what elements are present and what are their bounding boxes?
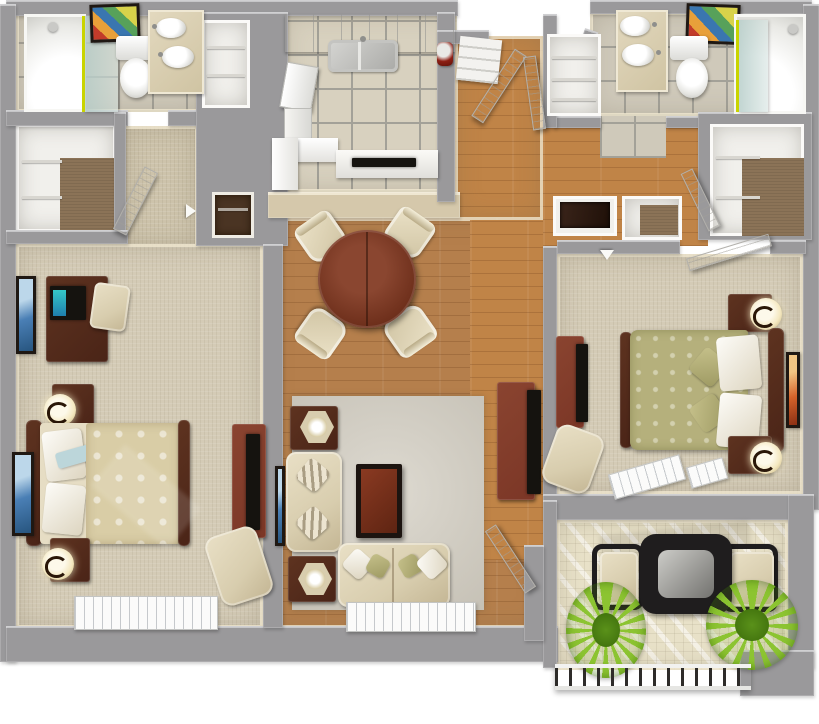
- closet-2-shelf: [716, 196, 760, 199]
- tv-b2: [576, 344, 588, 422]
- coffee-table: [356, 464, 402, 538]
- utility-closet-shelf: [207, 46, 245, 49]
- kitchen-sink-divider: [358, 42, 361, 70]
- vanity-2-sink-top: [620, 16, 650, 36]
- lamp-b1-bottom: [42, 548, 74, 580]
- vanity-2-sink-bottom: [622, 44, 654, 66]
- desk-monitor-screen: [53, 290, 66, 316]
- door-swing-mark: [600, 250, 614, 260]
- wall-bath1-bottom-left: [6, 110, 128, 126]
- sofa-cushion-split: [392, 548, 394, 602]
- vanity-1-faucet-icon: [152, 24, 157, 29]
- patio-table-glass: [658, 550, 714, 598]
- laundry-shelf: [552, 56, 596, 59]
- bathroom-2-entry-tile: [600, 116, 666, 158]
- wall-patio-left: [543, 500, 557, 668]
- patio-railing: [555, 664, 751, 690]
- bedroom-1-art-bottom: [12, 452, 34, 536]
- bed-2-pillow: [716, 334, 763, 391]
- laundry-closet: [547, 34, 601, 116]
- closet-1-shelf: [22, 160, 62, 163]
- bedroom-1-window: [74, 596, 218, 630]
- vanity-1-faucet-icon: [158, 52, 163, 57]
- red-appliance: [437, 42, 453, 66]
- bed-2-headboard: [768, 328, 784, 452]
- linen-closet-carpet: [640, 205, 678, 235]
- pantry-dark-closet: [212, 192, 254, 238]
- wall-bedroom2-bottom: [543, 494, 805, 520]
- lamp-b1-top: [44, 394, 76, 426]
- utility-closet: [202, 20, 250, 108]
- desk-chair: [89, 282, 131, 333]
- kitchen-counter-L-vertical: [272, 138, 298, 190]
- tv-b1: [246, 434, 260, 530]
- shower-2-door-edge: [736, 20, 739, 112]
- shower-2-glass-door: [738, 20, 768, 112]
- bed-1-pillow: [41, 482, 86, 536]
- wall-kitchen-dining: [268, 192, 460, 218]
- laundry-shelf: [552, 78, 596, 81]
- vanity-1-sink-bottom: [162, 46, 194, 68]
- dining-table-seam: [366, 232, 368, 326]
- laundry-shelf: [552, 98, 596, 101]
- utility-closet-shelf: [207, 74, 245, 77]
- shower-1-door-edge: [82, 16, 85, 112]
- patio-plant-right: [706, 580, 798, 670]
- vanity-2-faucet-icon: [656, 50, 661, 55]
- closet-1-carpet: [60, 158, 116, 232]
- kitchen-faucet-icon: [360, 36, 366, 42]
- wall-bath2-bottom-left: [553, 116, 601, 128]
- closet-2-shelf: [716, 156, 760, 159]
- cooktop: [352, 158, 416, 167]
- floor-plan: [0, 0, 819, 724]
- vanity-2-faucet-icon: [652, 22, 657, 27]
- door-swing-mark: [186, 204, 196, 218]
- pantry-shelf: [218, 208, 248, 211]
- wall-hall-patio-stub: [524, 545, 544, 641]
- living-art: [275, 466, 285, 546]
- bedroom-2-art: [786, 352, 800, 428]
- kitchen-sink: [328, 40, 398, 72]
- wall-closet1-bottom: [6, 230, 128, 244]
- shower-2-head-icon: [788, 24, 798, 34]
- bedroom-1-art-top: [16, 276, 36, 354]
- toilet-2-bowl: [676, 58, 708, 98]
- closet-1-shelf: [22, 196, 62, 199]
- built-in-counter-top: [560, 202, 610, 228]
- vanity-1-sink-top: [156, 18, 186, 38]
- shower-1-head-icon: [48, 22, 58, 32]
- tv-flatscreen: [527, 390, 541, 494]
- wall-bedroom2-top-left: [557, 240, 680, 254]
- wall-bedroom2-top-right: [770, 240, 806, 254]
- living-room-window: [346, 602, 476, 632]
- toilet-2-tank: [670, 36, 708, 60]
- lamp-b2-top: [750, 298, 782, 330]
- wall-left: [0, 4, 16, 662]
- lamp-b2-bottom: [750, 442, 782, 474]
